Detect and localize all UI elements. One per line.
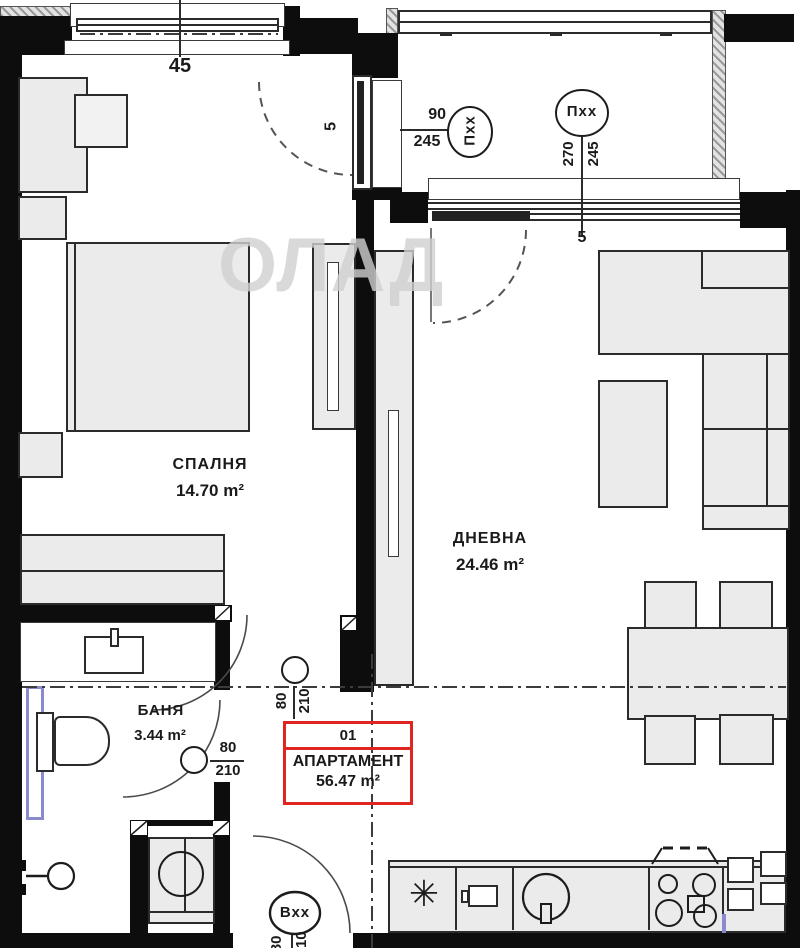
door-bedroom-height: 210 bbox=[297, 683, 313, 719]
door-jamb-mark bbox=[215, 606, 230, 620]
door-bath-width: 80 bbox=[212, 740, 244, 756]
window-tag-bedroom: Пхх bbox=[462, 113, 479, 149]
door-jamb-mark bbox=[213, 821, 229, 835]
entry-door-tag: Вхх bbox=[272, 904, 318, 921]
dim-living-window-gap: 5 bbox=[570, 230, 594, 247]
tv-cabinet-slot bbox=[388, 410, 399, 557]
door-bedroom-width: 80 bbox=[274, 683, 290, 719]
washing-machine-line bbox=[184, 839, 186, 911]
apartment-tag-box: 01 АПАРТАМЕНТ 56.47 m² bbox=[283, 721, 413, 805]
window-mullion-line bbox=[78, 24, 277, 26]
wall-washer-niche-left bbox=[130, 820, 148, 933]
counter-divider bbox=[455, 866, 457, 930]
washing-machine-base bbox=[148, 911, 215, 924]
bath-tap bbox=[110, 628, 119, 647]
axis-line-horizontal bbox=[22, 686, 786, 688]
window-tick bbox=[660, 32, 672, 36]
cabinet-shelf bbox=[727, 888, 754, 911]
counter-divider bbox=[648, 866, 650, 930]
valve-bracket bbox=[16, 860, 26, 871]
wall-living-window-left-jamb bbox=[390, 192, 428, 223]
window-tick bbox=[550, 32, 562, 36]
window-sill bbox=[64, 40, 290, 55]
door-fraction-line bbox=[293, 686, 295, 719]
cabinet-shelf bbox=[760, 882, 787, 905]
window-center-tick bbox=[179, 0, 181, 57]
window-living-width: 270 bbox=[561, 136, 577, 172]
balcony-window-line bbox=[398, 21, 712, 23]
valve-symbol bbox=[48, 863, 74, 889]
balcony-living-door-arc bbox=[433, 230, 526, 323]
apartment-number: 01 bbox=[286, 724, 410, 750]
room-name-bedroom: СПАЛНЯ bbox=[160, 456, 260, 474]
door-entry-height: 210 bbox=[294, 926, 310, 948]
chair bbox=[719, 714, 774, 765]
door-entry-width: 80 bbox=[269, 926, 285, 948]
cabinet-shelf bbox=[760, 851, 787, 877]
nightstand bbox=[18, 432, 63, 478]
room-area-bedroom: 14.70 m² bbox=[160, 482, 260, 500]
chair bbox=[644, 581, 697, 633]
window-tag-living: Пхх bbox=[560, 103, 604, 120]
bedroom-balcony-sill bbox=[372, 80, 402, 188]
dim-top-window: 45 bbox=[158, 56, 202, 77]
fridge-icon: ✳ bbox=[404, 874, 444, 914]
wall-above-balcony-window bbox=[352, 33, 398, 78]
sofa-cushion-line bbox=[702, 505, 790, 507]
window-leader-line bbox=[400, 129, 448, 131]
nightstand bbox=[18, 196, 67, 240]
living-window-sill bbox=[428, 178, 740, 200]
valve-bracket bbox=[16, 884, 26, 895]
wall-bottom-right bbox=[353, 933, 800, 948]
dishwasher-icon bbox=[468, 885, 498, 907]
toilet-bowl bbox=[54, 716, 110, 766]
window-leader-line bbox=[581, 137, 583, 237]
sofa-cushion-line bbox=[766, 355, 768, 505]
living-window-line bbox=[428, 208, 740, 210]
dim-bedroom-window-gap: 5 bbox=[324, 114, 341, 138]
washing-machine bbox=[148, 837, 215, 913]
window-tick bbox=[440, 32, 452, 36]
living-window-line bbox=[530, 213, 740, 215]
door-knob-symbol bbox=[181, 747, 207, 773]
door-jamb-mark bbox=[131, 821, 147, 835]
plumbing-mark bbox=[722, 914, 726, 933]
room-name-bath: БАНЯ bbox=[125, 702, 197, 719]
chair bbox=[719, 581, 773, 633]
sliding-door-panel bbox=[432, 211, 530, 221]
wall-washer-niche-top bbox=[148, 820, 213, 826]
wall-bottom-left bbox=[0, 933, 233, 948]
wall-living-window-right-jamb bbox=[740, 192, 786, 228]
door-jamb-mark bbox=[342, 617, 356, 630]
dishwasher-icon-tab bbox=[461, 890, 469, 903]
sofa-top bbox=[598, 250, 790, 355]
apartment-area: 56.47 m² bbox=[286, 774, 410, 791]
wall-bedroom-bath bbox=[20, 605, 232, 622]
chair bbox=[644, 715, 696, 765]
dining-table bbox=[627, 627, 789, 720]
bedroom-balcony-glazing bbox=[357, 81, 364, 184]
counter-divider bbox=[512, 866, 514, 930]
dresser-divider bbox=[20, 570, 225, 572]
wall-washer-niche-right bbox=[213, 820, 230, 933]
living-window-line bbox=[428, 202, 740, 204]
wall-bedroom-balcony-top bbox=[285, 18, 358, 54]
sofa-cushion-line bbox=[701, 287, 790, 289]
cabinet-shelf bbox=[727, 857, 754, 883]
window-bedroom-width: 90 bbox=[412, 107, 446, 124]
window-bedroom-height: 245 bbox=[406, 134, 448, 151]
room-area-bath: 3.44 m² bbox=[120, 728, 200, 744]
wall-bath-right-upper bbox=[214, 622, 230, 690]
armchair bbox=[74, 94, 128, 148]
sofa-cushion-line bbox=[701, 250, 703, 288]
sofa-cushion-line bbox=[702, 428, 790, 430]
wall-top-left bbox=[0, 16, 72, 55]
wall-top-right-corner bbox=[724, 14, 794, 42]
door-bath-height: 210 bbox=[207, 763, 249, 779]
door-knob-symbol bbox=[282, 657, 308, 683]
floor-plan: ✳ bbox=[0, 0, 800, 948]
window-living-height: 245 bbox=[586, 136, 602, 172]
bed-headboard-line bbox=[74, 244, 76, 430]
sofa-right bbox=[702, 353, 790, 530]
watermark: ОЛАД bbox=[218, 222, 444, 309]
room-name-living: ДНЕВНА bbox=[440, 530, 540, 548]
living-window-line bbox=[530, 219, 740, 221]
apartment-label: АПАРТАМЕНТ bbox=[286, 754, 410, 771]
toilet-tank bbox=[36, 712, 54, 772]
coffee-table bbox=[598, 380, 668, 508]
room-area-living: 24.46 m² bbox=[440, 556, 540, 574]
